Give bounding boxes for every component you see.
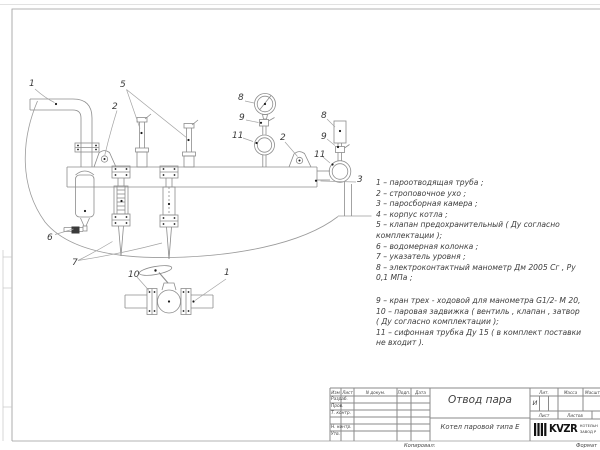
reference-dots: [55, 103, 341, 312]
callout-5-safety-valves: 5: [120, 81, 126, 90]
legend-item: 2 – строповочное ухо ;: [376, 189, 600, 200]
water-gauge-column: [64, 171, 94, 234]
callout-11-siphon-left: 11: [232, 132, 243, 141]
level-indicator-right: [160, 166, 178, 259]
kvzr-logo-icon: [534, 423, 546, 436]
callout-2-lug-left: 2: [112, 103, 118, 112]
three-way-valve-left: [260, 118, 275, 136]
legend-item: не входит ).: [376, 338, 600, 349]
legend-item: 7 – указатель уровня ;: [376, 252, 600, 263]
kvzr-logo-text: KVZR: [549, 422, 577, 435]
tb-col-podp: Подп.: [397, 390, 411, 396]
tb-col-data: Дата: [411, 390, 430, 396]
safety-valve-right: [183, 120, 199, 167]
tb-sheet-label: Лист: [530, 413, 558, 419]
doc-title: Отвод пара: [430, 394, 530, 406]
legend-item: 4 – корпус котла ;: [376, 210, 600, 221]
company-name-line1: КОТЕЛЬН: [580, 424, 598, 429]
drawing-sheet: { "colors": { "drawing_line": "#8c8c8c",…: [0, 0, 600, 450]
legend-item: 3 – паросборная камера ;: [376, 199, 600, 210]
legend-item: 11 – сифонная трубка Ду 15 ( в комплект …: [376, 328, 600, 339]
steam-pipe: [30, 99, 99, 167]
tb-sheets-label: Листов: [558, 413, 592, 419]
tb-col-ndoc: N докум.: [354, 390, 397, 396]
callout-8-ec-gauge: 8: [321, 112, 327, 121]
legend-item: ( Ду согласно комплектации );: [376, 317, 600, 328]
callout-11-siphon-right: 11: [314, 151, 325, 160]
legend-item: 0,1 МПа ;: [376, 273, 600, 284]
callout-2-lug-right: 2: [280, 134, 286, 143]
legend-item: 6 – водомерная колонка ;: [376, 242, 600, 253]
boiler-shell-outline: [25, 101, 371, 258]
tb-row-tkontr: Т. контр.: [331, 411, 351, 417]
tb-row-utv: Утв.: [331, 432, 340, 438]
leader-lines: [35, 89, 356, 301]
callout-9-cock-right: 9: [321, 133, 327, 142]
footer-format-label: Формат: [576, 443, 597, 449]
parts-legend: 1 – пароотводящая труба ; 2 – строповочн…: [376, 178, 600, 349]
siphon-tube-left: [255, 135, 275, 167]
tb-row-nkontr: Н. контр.: [331, 425, 352, 431]
callout-1-pipe-right: 1: [224, 269, 230, 278]
callout-8-gauge: 8: [238, 94, 244, 103]
tb-row-razrab: Разраб.: [331, 397, 348, 403]
footer-copied-label: Копировал:: [404, 443, 435, 449]
callout-1-pipe: 1: [29, 80, 35, 89]
callout-7-level-gauge: 7: [72, 259, 78, 268]
tb-col-izm: Изм: [330, 390, 341, 396]
tb-lit-value: И: [533, 399, 538, 407]
legend-item: 10 – паровая задвижка ( вентиль , клапан…: [376, 307, 600, 318]
callout-6-water-column: 6: [47, 234, 53, 243]
callout-3-chamber: 3: [357, 176, 363, 185]
steam-chamber: [67, 167, 330, 187]
pressure-gauge: [255, 94, 276, 120]
doc-subtitle: Котел паровой типа Е: [430, 423, 530, 431]
legend-item: комплектации );: [376, 231, 600, 242]
electro-contact-gauge: [334, 121, 346, 147]
legend-item: 1 – пароотводящая труба ;: [376, 178, 600, 189]
legend-item: 5 – клапан предохранительный ( Ду соглас…: [376, 220, 600, 231]
tb-col-list: Лист: [341, 390, 354, 396]
callout-9-cock-left: 9: [239, 114, 245, 123]
lifting-lug-right: [289, 152, 311, 167]
callout-10-valve: 10: [128, 271, 139, 280]
tb-row-prov: Пров.: [331, 404, 344, 410]
left-margin-table: [3, 250, 12, 441]
company-name-line2: ЗАВОД Р: [580, 430, 596, 435]
tb-mass-label: Масса: [558, 390, 583, 396]
legend-item: 8 – электроконтактный манометр Дм 2005 С…: [376, 263, 600, 274]
tb-lit-label: Лит.: [530, 390, 558, 396]
tb-scale-label: Масштаб: [585, 390, 600, 396]
level-indicator-left: [112, 166, 130, 256]
legend-item: 9 – кран трех - ходовой для манометра G1…: [376, 296, 600, 307]
siphon-tube-right: [329, 161, 351, 216]
